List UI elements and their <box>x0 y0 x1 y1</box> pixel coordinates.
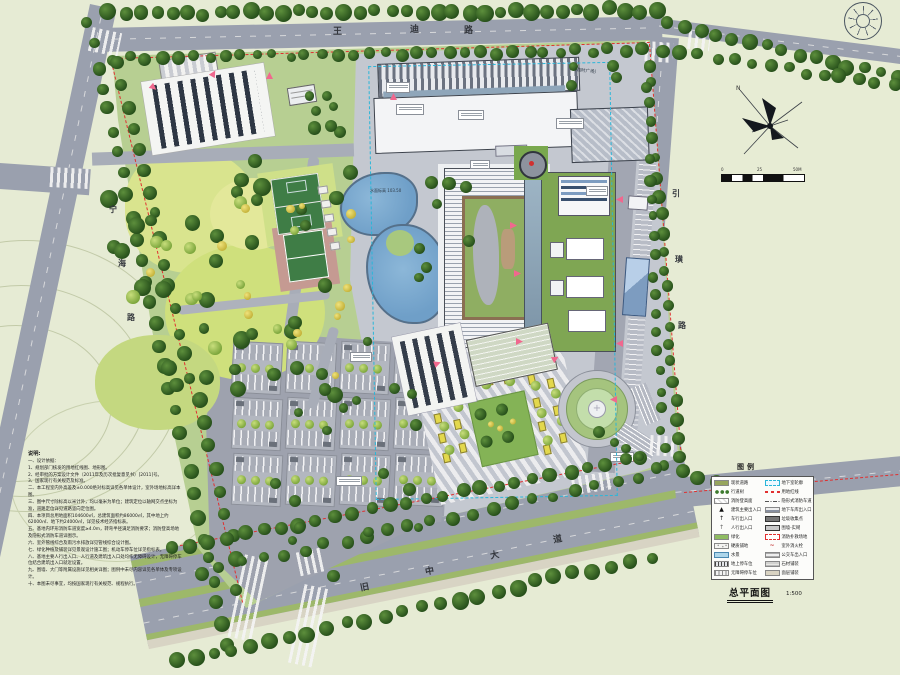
kiosk <box>628 195 649 210</box>
legend-label: 行道树 <box>731 489 744 495</box>
tree <box>414 243 425 254</box>
tree <box>632 5 647 20</box>
tree <box>354 6 367 19</box>
legend-label: 公交车出入口 <box>782 552 808 558</box>
tree <box>122 101 136 115</box>
tree <box>460 181 472 193</box>
tree <box>613 476 624 487</box>
road-name-right: 璜 <box>675 254 683 265</box>
tree <box>401 5 412 16</box>
tree <box>446 512 460 526</box>
tree <box>114 243 130 259</box>
tree <box>645 154 655 164</box>
tree <box>196 9 209 22</box>
approval-stamp <box>844 2 882 40</box>
tree <box>319 383 331 395</box>
tree <box>416 600 428 612</box>
legend-label: 现状道路 <box>731 480 748 486</box>
roof-bit <box>236 457 244 462</box>
legend-row: 隐形式消防车道 <box>765 497 813 506</box>
tree <box>663 339 674 350</box>
tree <box>322 426 332 436</box>
legend-label: 用地红线 <box>782 489 799 495</box>
legend-icon-rescue <box>765 534 780 540</box>
tree <box>540 5 554 19</box>
tree <box>646 132 658 144</box>
tree <box>859 62 870 73</box>
tree <box>110 56 123 69</box>
tree <box>662 280 674 292</box>
tree <box>320 7 334 21</box>
tree <box>118 167 129 178</box>
tree <box>169 652 185 668</box>
legend-row: 无障碍停车位 <box>714 569 762 578</box>
tree <box>784 62 795 73</box>
tree <box>273 324 282 333</box>
tree <box>299 203 305 209</box>
tree <box>304 419 313 428</box>
tree <box>644 60 656 72</box>
tree <box>317 49 328 60</box>
tree <box>565 465 579 479</box>
tree <box>230 584 242 596</box>
bench <box>323 213 334 222</box>
tree <box>180 5 195 20</box>
tree <box>342 536 354 548</box>
legend-row: ▲建筑主要出入口 <box>714 506 762 515</box>
notes-heading: 说明: <box>28 450 182 457</box>
note-line: 十、本图未尽事宜，均按国家现行有关规范、规程执行。 <box>28 582 182 589</box>
tree <box>248 154 262 168</box>
tree <box>195 567 209 581</box>
tree <box>253 50 262 59</box>
tree <box>506 45 518 57</box>
tree <box>690 471 704 485</box>
tree <box>97 84 108 95</box>
tree <box>334 313 341 320</box>
tree <box>112 146 123 157</box>
tree <box>588 48 598 58</box>
legend-icon-dashdot <box>765 501 780 502</box>
tree <box>335 4 352 21</box>
legend-row: 地上停车位 <box>714 560 762 569</box>
tree <box>457 483 471 497</box>
note-line: 四、本项目总用地面积104600㎡，总建筑面积约86000㎡，其中地上约6200… <box>28 514 182 528</box>
basement-outline <box>368 62 618 500</box>
tree <box>185 215 201 231</box>
tree <box>264 420 273 429</box>
legend-label: 无障碍停车位 <box>731 570 757 576</box>
tree <box>190 510 206 526</box>
tree <box>344 362 353 371</box>
tree <box>152 340 165 353</box>
legend-icon-green <box>714 534 729 540</box>
tree <box>819 70 830 81</box>
tree <box>729 53 741 65</box>
tree <box>304 363 313 372</box>
tree <box>197 415 212 430</box>
tree <box>229 364 241 376</box>
tree <box>492 585 506 599</box>
tree <box>278 550 290 562</box>
legend-row: 地下车库出入口 <box>765 506 813 515</box>
tree <box>241 204 250 213</box>
tree <box>184 464 199 479</box>
bench <box>329 241 340 250</box>
tree <box>352 396 361 405</box>
tree <box>389 383 400 394</box>
tree <box>209 462 224 477</box>
note-line: 八、基地主要人行出入口、人行道及建筑出入口处均作无障碍设计，无障碍停车位结合建筑… <box>28 555 182 569</box>
tree <box>267 368 281 382</box>
tree <box>152 6 164 18</box>
tree <box>665 322 675 332</box>
legend-row: 消防扑救场地 <box>765 533 813 542</box>
tree <box>258 523 271 536</box>
tree <box>213 562 224 573</box>
tree <box>250 363 259 372</box>
tree <box>363 527 374 538</box>
legend-label: 水景 <box>731 552 740 558</box>
tree <box>508 2 524 18</box>
tree <box>290 226 299 235</box>
tree <box>304 475 313 484</box>
note-line: 一、设计依据： <box>28 459 182 466</box>
tree <box>569 484 582 497</box>
note-line: 七、绿化种植及铺装详见景观设计施工图；机动车停车位详见指标表。 <box>28 548 182 555</box>
legend-label: 隐形式消防车道 <box>782 498 812 504</box>
legend-icon-tree <box>714 489 729 495</box>
tree <box>238 525 253 540</box>
tree <box>209 595 223 609</box>
tree <box>244 310 253 319</box>
legend-row: 消防登高面 <box>714 497 762 506</box>
tree <box>593 426 605 438</box>
tree <box>208 341 221 354</box>
pond-elevation-label: 水面标高 103.50 <box>370 188 401 194</box>
tree <box>396 49 409 62</box>
legend-label: 车行出入口 <box>731 516 752 522</box>
tree <box>467 509 479 521</box>
tree <box>184 242 196 254</box>
tree <box>199 323 210 334</box>
tree <box>889 78 900 92</box>
legend-label: 地上停车位 <box>731 561 752 567</box>
tree <box>695 24 709 38</box>
legend-row: 水景 <box>714 551 762 560</box>
legend-label: 地下车库出入口 <box>782 507 812 513</box>
tree <box>167 7 179 19</box>
tree <box>565 565 579 579</box>
tree <box>309 515 321 527</box>
tree <box>545 568 561 584</box>
tree <box>188 649 205 666</box>
tree <box>245 235 259 249</box>
roof-bit <box>323 442 331 447</box>
tree <box>174 329 185 340</box>
tree <box>387 5 399 17</box>
tree <box>676 464 690 478</box>
bench <box>326 227 337 236</box>
tree <box>647 553 658 564</box>
tree <box>444 4 459 19</box>
roof-bit <box>344 457 352 462</box>
legend-row: 石材铺装 <box>765 560 813 569</box>
tree <box>138 53 151 66</box>
legend-icon-water <box>714 552 729 558</box>
tree <box>318 278 332 292</box>
legend-icon-stone <box>765 561 780 567</box>
tennis-court <box>283 229 329 282</box>
tree <box>414 523 423 532</box>
tree <box>100 101 114 115</box>
tree <box>329 191 344 206</box>
tree <box>673 451 686 464</box>
tree <box>646 116 657 127</box>
tree <box>762 39 773 50</box>
legend-label: 地下室轮廓 <box>782 480 803 486</box>
tree <box>356 614 372 630</box>
legend-icon-carent: ↑ <box>714 516 729 522</box>
tree <box>236 474 245 483</box>
tree <box>650 249 661 260</box>
tree <box>177 346 192 361</box>
note-line: 三、图中尺寸除标高以米计外，均以毫米为单位；建筑定位以轴网交点坐标为准，道路定位… <box>28 500 182 514</box>
legend-row: 绿化 <box>714 533 762 542</box>
tree <box>220 532 234 546</box>
legend-row: 公交车出入口 <box>765 551 813 560</box>
tree <box>170 303 181 314</box>
legend-label: 建筑主要出入口 <box>731 507 761 513</box>
legend-icon-park <box>714 561 729 567</box>
tree <box>775 44 788 57</box>
tree <box>661 16 674 29</box>
tree <box>611 72 622 83</box>
tree <box>156 51 170 65</box>
note-line: 五、基地内环形消防车道宽度≥4.0m，转弯半径满足消防要求；消防登高场地及隐形式… <box>28 527 182 541</box>
tree <box>571 4 582 15</box>
tree <box>672 45 687 60</box>
tree <box>556 5 571 20</box>
roof-bit <box>290 401 298 406</box>
tree <box>656 366 664 374</box>
tree <box>472 480 487 495</box>
tree <box>487 502 501 516</box>
tree <box>527 493 538 504</box>
roof-bit <box>236 401 244 406</box>
tree <box>657 388 666 397</box>
legend-icon-pave2 <box>765 570 780 576</box>
tree <box>663 300 674 311</box>
tree <box>200 535 215 550</box>
tree <box>508 477 520 489</box>
tree <box>666 376 678 388</box>
tree <box>250 475 259 484</box>
tree <box>250 419 259 428</box>
tree <box>259 6 274 21</box>
tree <box>287 53 296 62</box>
legend-row: 行道树 <box>714 488 762 497</box>
legend-row: 现状道路 <box>714 479 762 488</box>
tree <box>742 34 758 50</box>
legend-box: 现状道路行道树消防登高面▲建筑主要出入口↑车行出入口↑人行出入口绿化硬质铺地水景… <box>711 476 814 580</box>
tree <box>172 51 186 65</box>
tree <box>396 605 408 617</box>
legend-icon-trash <box>765 516 780 522</box>
tree <box>214 616 230 632</box>
tree <box>602 0 617 15</box>
tree <box>187 487 200 500</box>
tree <box>243 2 260 19</box>
tree <box>343 284 351 292</box>
tree <box>342 616 354 628</box>
tree <box>225 645 237 657</box>
tree <box>275 5 292 22</box>
road-name-left: 海 <box>118 258 126 269</box>
tree <box>584 564 600 580</box>
tree <box>810 50 823 63</box>
svg-text:N: N <box>736 85 741 92</box>
tree <box>108 127 119 138</box>
tree <box>424 515 435 526</box>
tree <box>672 432 685 445</box>
tree <box>237 556 247 566</box>
legend-icon-fire <box>714 498 729 504</box>
drawing-scale: 1:500 <box>786 591 802 597</box>
tree <box>691 48 703 60</box>
tree <box>332 49 345 62</box>
tree <box>660 443 671 454</box>
legend-label: 围墙-实砌 <box>782 525 801 531</box>
tree <box>93 62 106 75</box>
tree <box>651 345 662 356</box>
note-line: 二、本工程室内外高差及±0.000绝对标高详见各单体设计，室外场地标高详本图。 <box>28 486 182 500</box>
tree <box>469 589 485 605</box>
roof-bit <box>269 498 277 503</box>
note-line: 1、规划部门核发的用地红线图、地形图。 <box>28 466 182 473</box>
tree <box>400 497 412 509</box>
tree <box>368 4 380 16</box>
tree <box>381 523 394 536</box>
tree <box>143 186 157 200</box>
tree <box>621 444 630 453</box>
tree <box>364 47 375 58</box>
tree <box>442 177 456 191</box>
tree <box>434 597 447 610</box>
legend-row: 硬质铺地 <box>714 542 762 551</box>
garage-entry-canopy <box>622 257 650 317</box>
tree <box>421 493 432 504</box>
tree <box>317 537 329 549</box>
tree <box>495 7 506 18</box>
tree <box>348 50 359 61</box>
tree <box>218 508 230 520</box>
tree <box>335 301 345 311</box>
tree <box>656 207 669 220</box>
tree <box>128 123 140 135</box>
tree <box>209 648 221 660</box>
compass-rose: N <box>732 82 806 162</box>
tree <box>605 561 618 574</box>
legend-row: 面层铺装 <box>765 569 813 578</box>
tree <box>286 205 294 213</box>
road-name-right: 引 <box>672 188 680 199</box>
road-name-top: 迪 <box>410 22 419 35</box>
scalebar-end: 50M <box>793 167 802 172</box>
tree <box>528 573 542 587</box>
tree <box>149 316 164 331</box>
tree <box>363 337 371 345</box>
tree <box>290 474 299 483</box>
legend-label: 垃圾收集点 <box>782 516 803 522</box>
roof-bit <box>269 386 277 391</box>
tree <box>318 476 327 485</box>
tree <box>172 426 187 441</box>
tree <box>290 418 299 427</box>
tree <box>293 329 301 337</box>
tree <box>671 394 684 407</box>
legend-label: 室外消火栓 <box>782 543 803 549</box>
tree <box>184 373 194 383</box>
tree <box>332 372 339 379</box>
tree <box>665 355 676 366</box>
legend-label: 人行出入口 <box>731 525 752 531</box>
scalebar-mid: 25 <box>757 167 762 172</box>
tree <box>120 7 134 21</box>
legend-icon-pave <box>714 543 729 549</box>
legend-row: 地下室轮廓 <box>765 479 813 488</box>
tree <box>358 363 367 372</box>
tree <box>623 554 637 568</box>
tiny-annotation <box>336 476 362 486</box>
scalebar-zero: 0 <box>721 167 724 172</box>
legend-title: 图例 <box>737 462 757 472</box>
roof-bit <box>269 442 277 447</box>
tree <box>294 408 303 417</box>
roof-bit <box>344 345 352 350</box>
legend-row: ~室外消火栓 <box>765 542 813 551</box>
tree <box>460 47 470 57</box>
tree <box>358 419 367 428</box>
tree <box>203 552 214 563</box>
tree <box>209 254 223 268</box>
road-name-left: 宁 <box>109 204 117 215</box>
tiny-annotation <box>350 352 372 362</box>
tree <box>125 51 136 62</box>
tree <box>145 215 157 227</box>
tree <box>288 316 302 330</box>
note-line: 六、室外管线综合及雨污水排放详见管线综合设计图。 <box>28 541 182 548</box>
legend-label: 消防登高面 <box>731 498 752 504</box>
tree <box>510 580 526 596</box>
legend-label: 消防扑救场地 <box>782 534 808 540</box>
legend-label: 石材铺装 <box>782 561 799 567</box>
tree <box>169 378 184 393</box>
tree <box>452 592 469 609</box>
tree <box>649 211 658 220</box>
tree <box>339 403 348 412</box>
tree <box>293 4 305 16</box>
tree <box>607 60 619 72</box>
legend-icon-redline <box>765 491 780 493</box>
legend-icon-road <box>714 480 729 486</box>
tree <box>209 576 221 588</box>
legend-label: 硬质铺地 <box>731 543 748 549</box>
tree <box>346 209 356 219</box>
roof-bit <box>323 498 331 503</box>
drawing-title: 总平面图 <box>727 585 773 603</box>
roof-bit <box>290 457 298 462</box>
